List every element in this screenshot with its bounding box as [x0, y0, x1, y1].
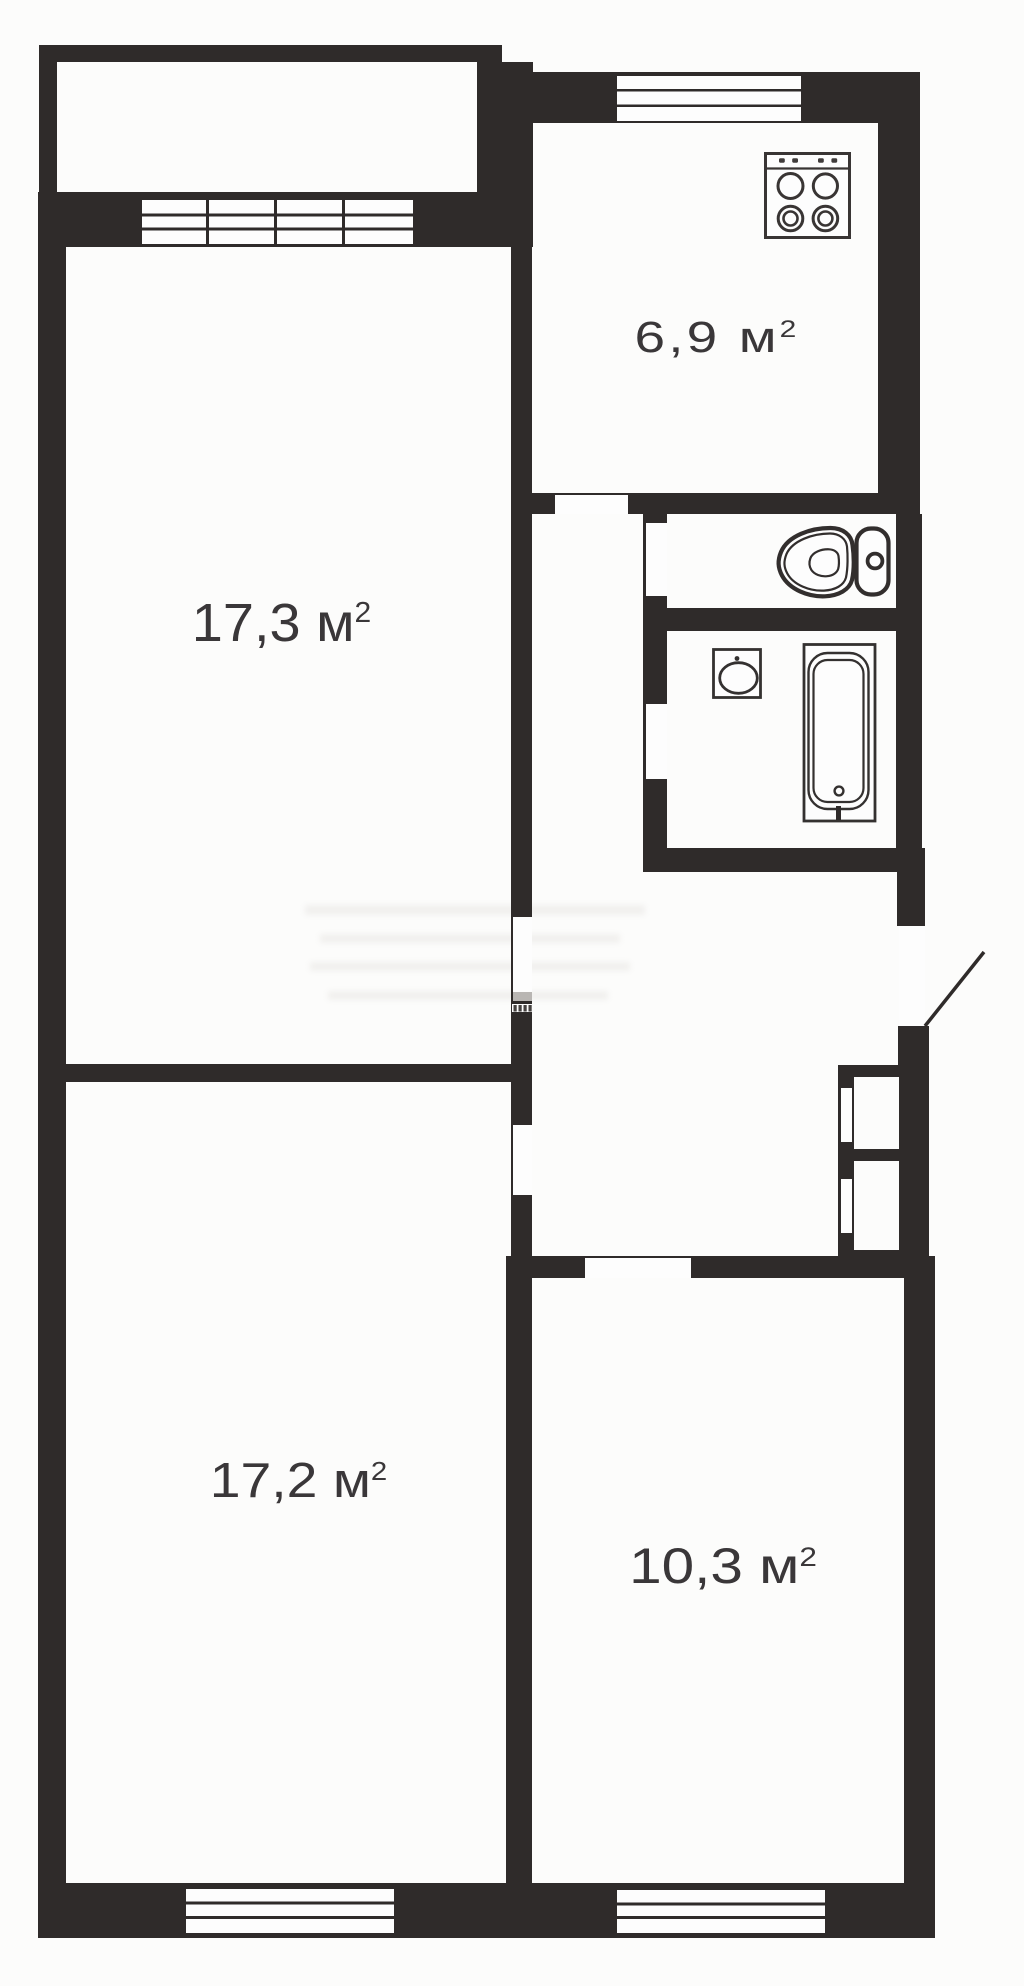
svg-text:17,2 м2: 17,2 м2 [210, 1454, 388, 1508]
svg-text:6,9 м2: 6,9 м2 [635, 312, 800, 361]
svg-text:17,3 м2: 17,3 м2 [192, 592, 371, 653]
svg-text:10,3 м2: 10,3 м2 [629, 1538, 817, 1594]
